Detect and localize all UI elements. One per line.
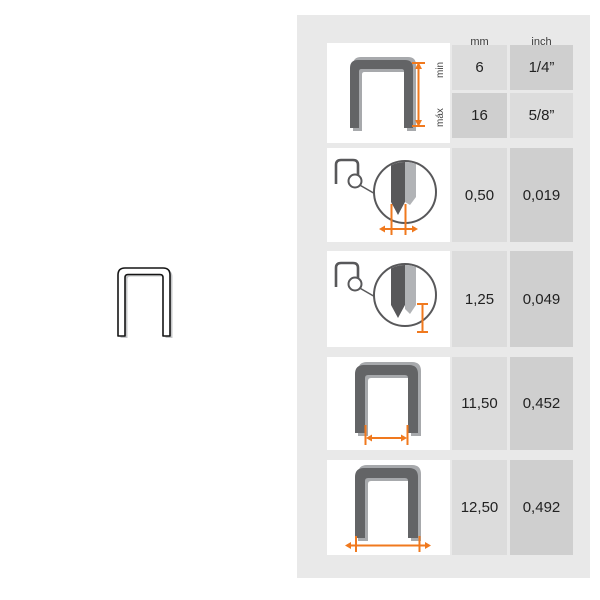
inner-width-mm-value: 11,50 xyxy=(452,357,507,450)
leg-length-min-mm-value: 6 xyxy=(452,45,507,90)
min-label: min xyxy=(434,49,447,91)
inner-width-illustration xyxy=(327,357,450,450)
row-point-length: 1,25 0,049 xyxy=(297,251,590,347)
point-length-mm-value: 1,25 xyxy=(452,251,507,347)
outer-width-mm-value: 12,50 xyxy=(452,460,507,555)
row-leg-length: min máx 6 1/4” 16 5/8” xyxy=(297,43,590,143)
row-outer-width: 12,50 0,492 xyxy=(297,460,590,555)
staple-inner-width-dimension-icon xyxy=(327,357,450,450)
wire-thickness-inch-value: 0,019 xyxy=(510,148,573,242)
inner-width-dimension-arrow xyxy=(366,425,408,445)
staple-spec-sheet: mm inch xyxy=(0,0,600,600)
leg-length-max-inch-value: 5/8” xyxy=(510,93,573,138)
leg-length-max-mm-value: 16 xyxy=(452,93,507,138)
staple-outline-shape xyxy=(118,268,173,338)
outer-width-illustration xyxy=(327,460,450,555)
leg-length-min-inch-value: 1/4” xyxy=(510,45,573,90)
magnified-staple-point-length-icon xyxy=(327,251,450,347)
inner-width-inch-value: 0,452 xyxy=(510,357,573,450)
actual-size-staple-icon xyxy=(116,264,174,340)
spec-table: mm inch xyxy=(297,15,590,578)
staple-leg-length-dimension-icon xyxy=(327,43,450,143)
wire-thickness-mm-value: 0,50 xyxy=(452,148,507,242)
point-length-illustration xyxy=(327,251,450,347)
leg-length-illustration: min máx xyxy=(327,43,450,143)
point-length-inch-value: 0,049 xyxy=(510,251,573,347)
wire-thickness-illustration xyxy=(327,148,450,242)
row-wire-thickness: 0,50 0,019 xyxy=(297,148,590,242)
staple-outer-width-dimension-icon xyxy=(327,460,450,555)
max-label: máx xyxy=(434,97,447,139)
outer-width-inch-value: 0,492 xyxy=(510,460,573,555)
magnified-staple-point-thickness-icon xyxy=(327,148,450,242)
row-inner-width: 11,50 0,452 xyxy=(297,357,590,450)
